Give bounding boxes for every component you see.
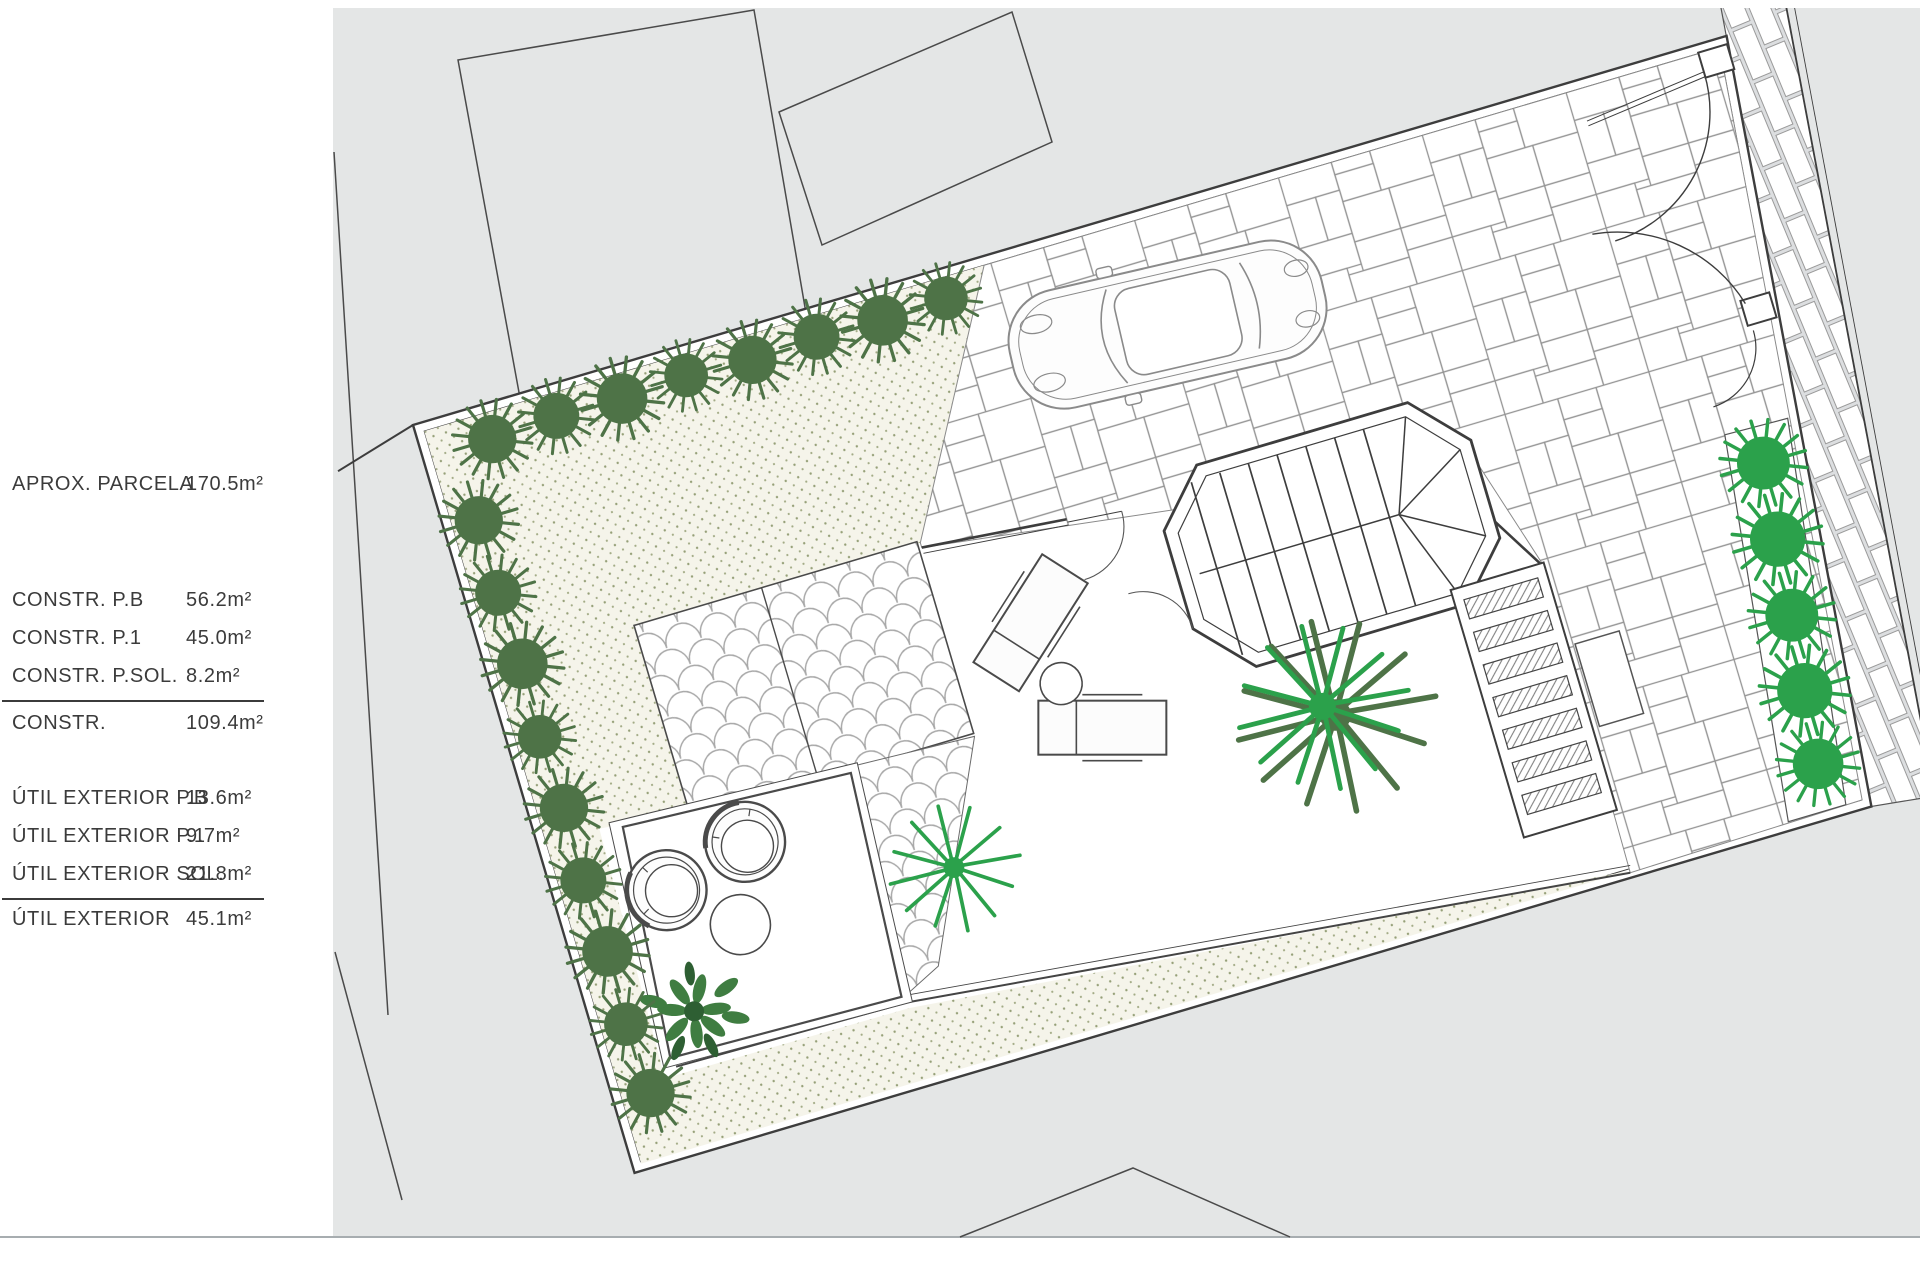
table-row: CONSTR. P.SOL. 8.2m² <box>12 665 240 688</box>
row-label: CONSTR. P.B <box>12 589 186 612</box>
sum-divider <box>2 700 264 702</box>
row-label: ÚTIL EXTERIOR <box>12 908 186 931</box>
row-value: 9.7m² <box>186 825 240 848</box>
table-row: APROX. PARCELA 170.5m² <box>12 473 264 496</box>
row-value: 21.8m² <box>186 863 252 886</box>
row-value: 170.5m² <box>186 473 264 496</box>
table-row: CONSTR. P.1 45.0m² <box>12 627 252 650</box>
row-value: 45.1m² <box>186 908 252 931</box>
row-label: APROX. PARCELA <box>12 473 186 496</box>
row-value: 8.2m² <box>186 665 240 688</box>
sum-divider <box>2 898 264 900</box>
row-label: ÚTIL EXTERIOR SOL. <box>12 863 186 886</box>
row-label: CONSTR. P.1 <box>12 627 186 650</box>
row-value: 45.0m² <box>186 627 252 650</box>
table-row: ÚTIL EXTERIOR 45.1m² <box>12 908 252 931</box>
table-row: CONSTR. 109.4m² <box>12 712 264 735</box>
row-label: ÚTIL EXTERIOR P.B <box>12 787 186 810</box>
site-plan-page: APROX. PARCELA 170.5m² CONSTR. P.B 56.2m… <box>0 0 1920 1280</box>
row-label: ÚTIL EXTERIOR P.1 <box>12 825 186 848</box>
table-row: CONSTR. P.B 56.2m² <box>12 589 252 612</box>
site-plan-drawing <box>0 0 1920 1280</box>
table-row: ÚTIL EXTERIOR P.B 13.6m² <box>12 787 252 810</box>
row-value: 109.4m² <box>186 712 264 735</box>
row-label: CONSTR. P.SOL. <box>12 665 186 688</box>
row-value: 13.6m² <box>186 787 252 810</box>
table-row: ÚTIL EXTERIOR P.1 9.7m² <box>12 825 240 848</box>
table-row: ÚTIL EXTERIOR SOL. 21.8m² <box>12 863 252 886</box>
row-label: CONSTR. <box>12 712 186 735</box>
row-value: 56.2m² <box>186 589 252 612</box>
